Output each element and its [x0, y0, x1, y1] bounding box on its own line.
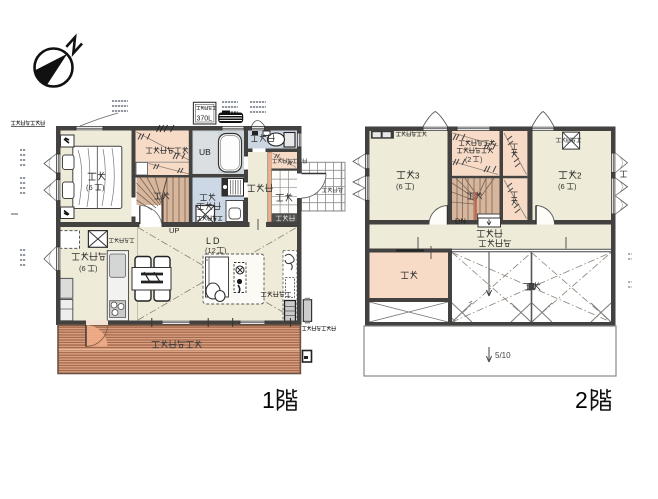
svg-text:1: 1: [262, 387, 275, 413]
svg-text:(6: (6: [396, 182, 403, 191]
svg-text:370L: 370L: [197, 116, 213, 123]
svg-text:(6: (6: [79, 264, 86, 273]
svg-text:DN: DN: [455, 217, 466, 226]
svg-text:LD: LD: [206, 236, 222, 246]
svg-text:5/10: 5/10: [495, 351, 511, 360]
svg-text:(6: (6: [558, 182, 565, 191]
svg-text:UP: UP: [169, 226, 179, 235]
svg-text:(12: (12: [205, 246, 216, 255]
svg-text:2: 2: [575, 387, 588, 413]
svg-text:): ): [480, 157, 482, 164]
svg-text:(6: (6: [86, 183, 93, 192]
svg-text:(2: (2: [465, 157, 471, 164]
svg-text:UB: UB: [199, 147, 211, 157]
svg-text:2: 2: [577, 172, 582, 181]
svg-text:3: 3: [415, 172, 420, 181]
